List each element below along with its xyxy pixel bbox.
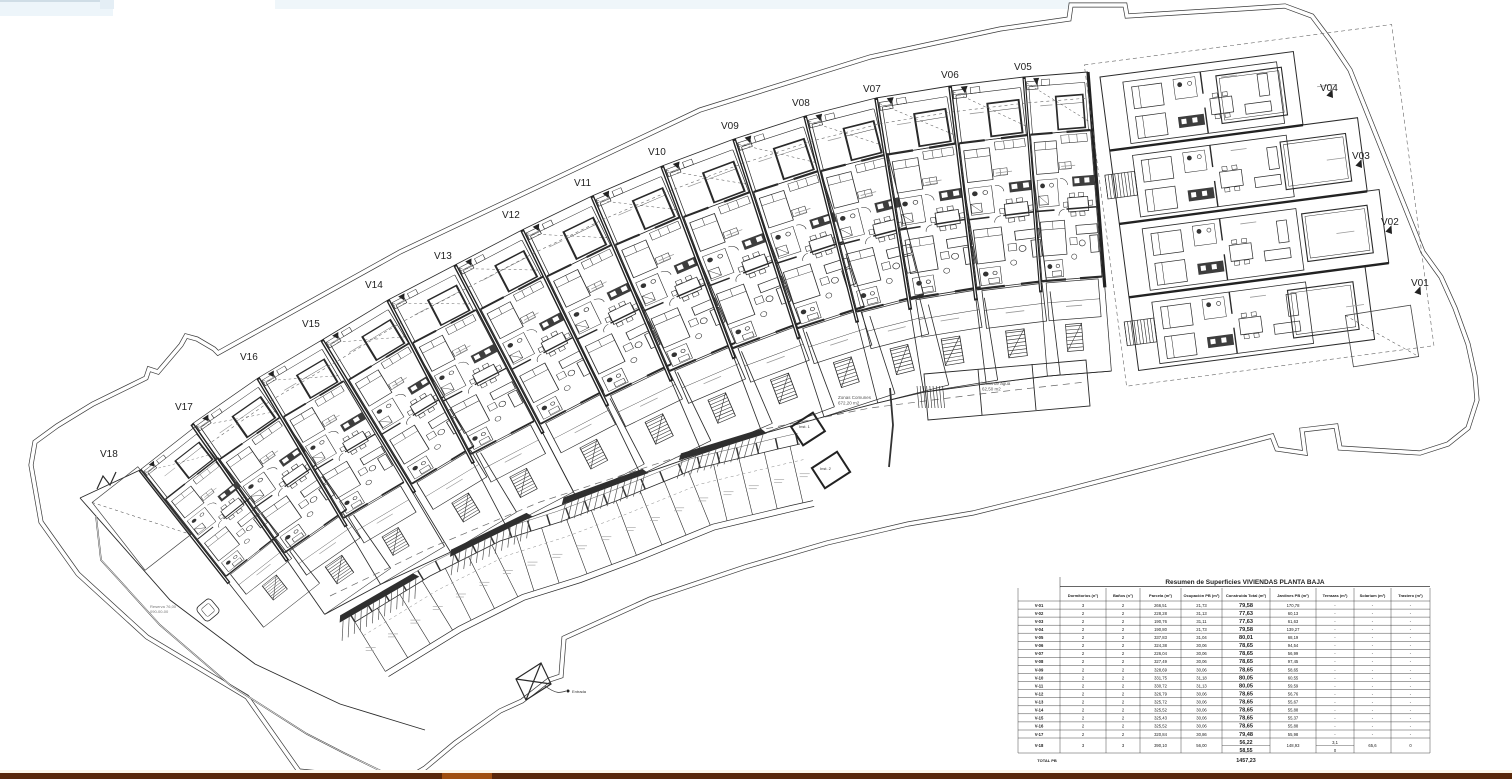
svg-text:V01: V01 [1411, 278, 1429, 289]
svg-text:Lámina de agua: Lámina de agua [978, 381, 1011, 386]
svg-text:139,27: 139,27 [1287, 627, 1300, 632]
svg-text:324,38: 324,38 [1154, 643, 1167, 648]
svg-text:V-03: V-03 [1035, 619, 1044, 624]
svg-text:320,84: 320,84 [1154, 732, 1167, 737]
svg-text:60,55: 60,55 [1288, 675, 1299, 680]
svg-text:30,06: 30,06 [1196, 692, 1207, 697]
svg-text:V14: V14 [365, 280, 383, 291]
svg-text:337,83: 337,83 [1154, 635, 1167, 640]
svg-text:V-02: V-02 [1035, 611, 1044, 616]
svg-text:80,05: 80,05 [1239, 683, 1253, 689]
svg-text:V16: V16 [240, 352, 258, 363]
svg-text:330,72: 330,72 [1154, 683, 1167, 688]
svg-text:77,63: 77,63 [1239, 611, 1253, 617]
svg-text:325,52: 325,52 [1154, 724, 1167, 729]
svg-text:V-12: V-12 [1035, 692, 1044, 697]
svg-text:55,88: 55,88 [1288, 724, 1299, 729]
svg-text:Inst. 1: Inst. 1 [799, 424, 811, 429]
svg-text:58,65: 58,65 [1288, 667, 1299, 672]
svg-text:V-10: V-10 [1035, 675, 1044, 680]
svg-text:30,86: 30,86 [1196, 732, 1207, 737]
svg-text:V-18: V-18 [1035, 743, 1044, 748]
svg-text:148,93: 148,93 [1287, 743, 1300, 748]
svg-text:V-14: V-14 [1035, 708, 1044, 713]
svg-text:21,73: 21,73 [1196, 627, 1207, 632]
svg-text:30,06: 30,06 [1196, 716, 1207, 721]
svg-text:30,06: 30,06 [1196, 708, 1207, 713]
svg-text:78,65: 78,65 [1239, 643, 1253, 649]
svg-text:266,51: 266,51 [1154, 603, 1167, 608]
svg-text:V-04: V-04 [1035, 627, 1044, 632]
svg-text:V03: V03 [1352, 151, 1370, 162]
svg-text:390,10: 390,10 [1154, 743, 1167, 748]
svg-text:62,50 m2: 62,50 m2 [982, 387, 1001, 392]
svg-text:31,04: 31,04 [1196, 635, 1207, 640]
svg-text:30,06: 30,06 [1196, 700, 1207, 705]
svg-text:97,45: 97,45 [1288, 659, 1299, 664]
svg-text:30,06: 30,06 [1196, 667, 1207, 672]
svg-text:77,63: 77,63 [1239, 619, 1253, 625]
svg-text:79,48: 79,48 [1239, 732, 1253, 738]
svg-text:331,75: 331,75 [1154, 675, 1167, 680]
svg-text:31,18: 31,18 [1196, 675, 1207, 680]
svg-text:55,37: 55,37 [1288, 716, 1299, 721]
svg-text:56,99: 56,99 [1288, 651, 1299, 656]
svg-text:V13: V13 [434, 251, 452, 262]
svg-text:V04: V04 [1320, 83, 1338, 94]
svg-text:V11: V11 [574, 178, 591, 189]
svg-text:Terrazas (m²): Terrazas (m²) [1323, 593, 1348, 598]
svg-text:60,13: 60,13 [1288, 611, 1299, 616]
svg-text:090-00-00: 090-00-00 [150, 609, 169, 614]
svg-text:327,49: 327,49 [1154, 659, 1167, 664]
svg-text:Entrada: Entrada [572, 689, 587, 694]
svg-text:Solarium (m²): Solarium (m²) [1360, 593, 1386, 598]
svg-text:21,73: 21,73 [1196, 603, 1207, 608]
svg-text:V07: V07 [863, 84, 881, 95]
svg-text:V02: V02 [1381, 217, 1399, 228]
svg-text:56,00: 56,00 [1196, 743, 1207, 748]
svg-text:31,13: 31,13 [1196, 683, 1207, 688]
svg-text:56,76: 56,76 [1288, 692, 1299, 697]
svg-text:V-11: V-11 [1035, 683, 1044, 688]
svg-text:V-08: V-08 [1035, 659, 1044, 664]
svg-text:79,58: 79,58 [1239, 603, 1253, 609]
svg-text:Baños (n°): Baños (n°) [1113, 593, 1134, 598]
svg-text:55,98: 55,98 [1288, 732, 1299, 737]
svg-text:78,65: 78,65 [1239, 692, 1253, 698]
svg-text:V-15: V-15 [1035, 716, 1044, 721]
svg-text:55,88: 55,88 [1288, 708, 1299, 713]
svg-text:Resumen de Superficies VIVIEND: Resumen de Superficies VIVIENDAS PLANTA … [1165, 579, 1325, 586]
svg-text:78,65: 78,65 [1239, 667, 1253, 673]
svg-text:68,19: 68,19 [1288, 635, 1299, 640]
svg-text:V-06: V-06 [1035, 643, 1044, 648]
svg-text:30,06: 30,06 [1196, 651, 1207, 656]
svg-text:31,11: 31,11 [1196, 619, 1207, 624]
svg-text:80,01: 80,01 [1239, 635, 1253, 641]
svg-text:78,65: 78,65 [1239, 651, 1253, 657]
svg-text:V-17: V-17 [1035, 732, 1044, 737]
svg-text:3,1: 3,1 [1332, 740, 1338, 745]
svg-text:V-09: V-09 [1035, 667, 1044, 672]
svg-text:Inst. 2: Inst. 2 [820, 466, 832, 471]
svg-text:Jardines PB (m²): Jardines PB (m²) [1277, 593, 1309, 598]
svg-text:228,28: 228,28 [1154, 611, 1167, 616]
svg-text:78,65: 78,65 [1239, 724, 1253, 730]
svg-text:Trastero (m²): Trastero (m²) [1398, 593, 1423, 598]
svg-text:V-16: V-16 [1035, 724, 1044, 729]
svg-text:325,72: 325,72 [1154, 700, 1167, 705]
svg-text:V10: V10 [648, 147, 666, 158]
svg-text:V15: V15 [302, 319, 320, 330]
svg-text:170,78: 170,78 [1287, 603, 1300, 608]
svg-text:325,52: 325,52 [1154, 708, 1167, 713]
svg-text:V-13: V-13 [1035, 700, 1044, 705]
svg-text:326,79: 326,79 [1154, 692, 1167, 697]
svg-text:78,65: 78,65 [1239, 700, 1253, 706]
svg-text:V-05: V-05 [1035, 635, 1044, 640]
svg-text:65,6: 65,6 [1368, 743, 1377, 748]
svg-text:30,06: 30,06 [1196, 724, 1207, 729]
svg-text:1457,23: 1457,23 [1236, 758, 1256, 764]
svg-text:Dormitorios (n°): Dormitorios (n°) [1068, 593, 1099, 598]
svg-text:TOTAL PB: TOTAL PB [1037, 758, 1057, 763]
svg-text:Ocupación PB (m²): Ocupación PB (m²) [1183, 593, 1220, 598]
svg-text:672,20 m2: 672,20 m2 [838, 401, 860, 406]
svg-text:V-07: V-07 [1035, 651, 1044, 656]
svg-text:V18: V18 [100, 449, 118, 460]
svg-text:59,59: 59,59 [1288, 683, 1299, 688]
svg-text:78,65: 78,65 [1239, 708, 1253, 714]
svg-text:190,80: 190,80 [1154, 627, 1167, 632]
svg-text:V09: V09 [721, 121, 739, 132]
svg-text:V12: V12 [502, 210, 520, 221]
svg-text:226,04: 226,04 [1154, 651, 1167, 656]
svg-text:190,76: 190,76 [1154, 619, 1167, 624]
svg-text:325,43: 325,43 [1154, 716, 1167, 721]
svg-text:30,06: 30,06 [1196, 659, 1207, 664]
svg-text:V08: V08 [792, 98, 810, 109]
svg-text:94,54: 94,54 [1288, 643, 1299, 648]
svg-text:Parcela (m²): Parcela (m²) [1149, 593, 1173, 598]
svg-text:30,06: 30,06 [1196, 643, 1207, 648]
svg-text:V17: V17 [175, 402, 193, 413]
svg-text:56,22: 56,22 [1240, 740, 1253, 746]
svg-text:328,69: 328,69 [1154, 667, 1167, 672]
svg-text:V05: V05 [1014, 62, 1032, 73]
svg-text:55,67: 55,67 [1288, 700, 1299, 705]
svg-text:78,65: 78,65 [1239, 659, 1253, 665]
svg-text:61,63: 61,63 [1288, 619, 1299, 624]
svg-text:80,05: 80,05 [1239, 675, 1253, 681]
svg-text:V-01: V-01 [1035, 603, 1044, 608]
svg-text:31,13: 31,13 [1196, 611, 1207, 616]
svg-text:Zonas Comunes: Zonas Comunes [838, 395, 872, 400]
svg-text:79,58: 79,58 [1239, 627, 1253, 633]
svg-text:78,65: 78,65 [1239, 716, 1253, 722]
svg-text:Construida Total (m²): Construida Total (m²) [1226, 593, 1267, 598]
svg-text:V06: V06 [941, 70, 959, 81]
